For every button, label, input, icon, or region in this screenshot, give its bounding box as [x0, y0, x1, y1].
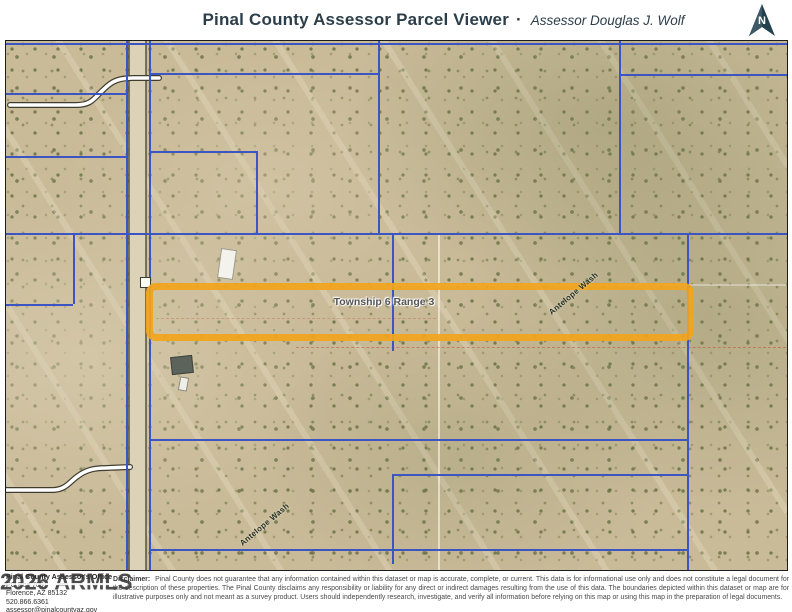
title-separator: · — [516, 10, 522, 30]
parcel-line — [378, 41, 380, 233]
parcel-line — [6, 156, 126, 158]
highlighted-parcel-outline[interactable] — [146, 283, 694, 341]
parcel-line — [392, 474, 687, 476]
parcel-line — [6, 43, 787, 45]
township-range-label: Township 6 Range 3 — [314, 296, 454, 308]
parcel-line — [6, 304, 73, 306]
disclaimer-label: Disclaimer: — [113, 576, 150, 583]
parcel-line — [619, 74, 787, 76]
parcel-line — [149, 73, 378, 75]
disclaimer-text: Pinal County does not guarantee that any… — [113, 576, 789, 601]
page-title: Pinal County Assessor Parcel Viewer — [202, 10, 509, 30]
parcel-line — [149, 151, 256, 153]
parcel-line — [149, 439, 687, 441]
disclaimer: Disclaimer:Pinal County does not guarant… — [113, 575, 789, 602]
office-email: assessor@pinalcountyaz.gov — [6, 607, 112, 612]
north-letter: N — [758, 15, 766, 27]
parcel-line — [392, 474, 394, 564]
parcel-viewer-page: Pinal County Assessor Parcel Viewer · As… — [0, 0, 792, 612]
parcel-line — [6, 233, 787, 235]
north-arrow-icon: N — [745, 3, 779, 39]
parcel-line — [619, 41, 621, 233]
building-dark — [170, 355, 194, 375]
assessor-name: Assessor Douglas J. Wolf — [531, 13, 685, 28]
quarter-line-red — [296, 347, 786, 348]
parcel-line — [73, 233, 75, 304]
road-vertical — [129, 41, 146, 570]
parcel-line — [6, 93, 126, 95]
map-canvas[interactable]: Township 6 Range 3 Antelope Wash Antelop… — [5, 40, 788, 571]
armls-watermark: 2026 ARMLS — [0, 568, 118, 595]
header-bar: Pinal County Assessor Parcel Viewer · As… — [0, 0, 792, 40]
office-phone: 520.866.6361 — [6, 599, 112, 608]
parcel-line — [126, 41, 128, 570]
parcel-line — [256, 151, 258, 233]
